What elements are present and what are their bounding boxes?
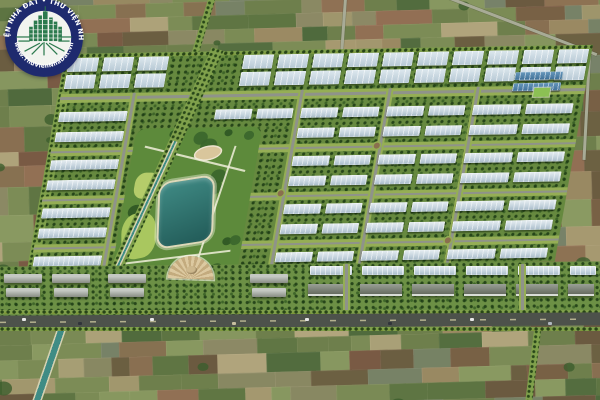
rowhouse-roof — [424, 125, 462, 136]
hall-roof — [274, 71, 306, 86]
vehicle — [22, 318, 26, 321]
rowhouse-roof — [41, 207, 111, 218]
rowhouse-roof — [283, 204, 321, 215]
street — [343, 264, 350, 314]
rowhouse-roof — [463, 152, 512, 163]
street-road — [521, 264, 524, 314]
rowhouse-roof — [507, 199, 556, 210]
hall-roof — [452, 51, 484, 66]
midrise-roof — [466, 266, 508, 275]
apartment-block — [6, 288, 40, 297]
hall-roof — [242, 54, 274, 69]
hall-roof — [417, 51, 449, 66]
rowhouse-roof — [46, 179, 116, 190]
rowhouse-roof — [296, 127, 334, 138]
hall-roof — [487, 50, 519, 65]
building-blocks — [30, 45, 593, 271]
rowhouse-roof — [419, 153, 457, 164]
district-buildings — [0, 264, 600, 344]
apartment-block — [4, 274, 42, 283]
rowhouse-roof — [402, 250, 440, 261]
rowhouse-roof — [386, 106, 424, 117]
hall-roof — [344, 70, 376, 85]
rowhouse-roof — [374, 174, 412, 185]
rowhouse-roof — [427, 105, 465, 116]
rowhouse-roof — [382, 126, 420, 137]
vehicle — [150, 318, 154, 321]
rowhouse-roof — [365, 222, 403, 233]
rowhouse-roof — [300, 107, 338, 118]
rowhouse-roof — [504, 220, 553, 231]
hall-roof — [414, 68, 446, 83]
rowhouse-roof — [468, 124, 517, 135]
midrise-roof — [412, 284, 454, 296]
rowhouse-roof — [455, 200, 504, 211]
rowhouse-roof — [407, 221, 445, 232]
factory-roof — [514, 71, 563, 80]
vehicle — [548, 322, 552, 325]
hall-roof — [312, 53, 344, 68]
rowhouse-roof — [274, 252, 312, 263]
hall-roof — [99, 74, 131, 89]
apartment-block — [250, 274, 288, 283]
rowhouse-roof — [451, 220, 500, 231]
hall-roof — [522, 50, 554, 65]
hall-roof — [309, 70, 341, 85]
road-tree-line — [0, 327, 600, 331]
apartment-block — [110, 288, 144, 297]
development-area — [30, 45, 593, 271]
hall-roof — [102, 57, 134, 72]
rowhouse-roof — [214, 109, 252, 120]
rowhouse-roof — [472, 104, 521, 115]
rowhouse-roof — [338, 127, 376, 138]
rowhouse-roof — [341, 107, 379, 118]
hall-roof — [557, 49, 589, 64]
apartment-block — [108, 274, 146, 283]
rowhouse-roof — [333, 155, 371, 166]
midrise-roof — [570, 266, 596, 275]
hall-roof — [347, 53, 379, 68]
hall-roof — [137, 56, 169, 71]
rowhouse-roof — [316, 251, 354, 262]
hall-roof — [484, 67, 516, 82]
aerial-masterplan-render: THƯ VIỆN NHÀ ĐẤT • THƯ VIỆN NHÀ ĐẤT ✦ ww… — [0, 0, 600, 400]
rowhouse-roof — [321, 223, 359, 234]
midrise-roof — [464, 284, 506, 296]
sports-field — [533, 88, 551, 97]
watermark-logo: THƯ VIỆN NHÀ ĐẤT • THƯ VIỆN NHÀ ĐẤT ✦ ww… — [2, 0, 86, 80]
rowhouse-roof — [521, 123, 570, 134]
rowhouse-roof — [54, 131, 124, 142]
rowhouse-roof — [360, 250, 398, 261]
rowhouse-roof — [329, 175, 367, 186]
hall-roof — [379, 69, 411, 84]
vehicle — [232, 322, 236, 325]
midrise-roof — [568, 284, 594, 296]
rowhouse-roof — [369, 202, 407, 213]
street — [519, 264, 526, 314]
rowhouse-roof — [58, 111, 128, 122]
apartment-block — [52, 274, 90, 283]
street-road — [345, 264, 348, 314]
plaza-dome — [186, 266, 197, 274]
rowhouse-roof — [415, 173, 453, 184]
vehicle — [78, 322, 82, 325]
rowhouse-roof — [291, 155, 329, 166]
hall-roof — [382, 52, 414, 67]
southern-district — [0, 264, 600, 344]
rowhouse-roof — [324, 203, 362, 214]
road-traffic — [0, 314, 600, 327]
rowhouse-roof — [516, 151, 565, 162]
vehicle — [388, 322, 392, 325]
rowhouse-roof — [279, 224, 317, 235]
apartment-block — [54, 288, 88, 297]
midrise-roof — [414, 266, 456, 275]
vehicle — [470, 318, 474, 321]
rowhouse-roof — [255, 108, 293, 119]
midrise-roof — [360, 284, 402, 296]
hall-roof — [239, 71, 271, 86]
rowhouse-roof — [49, 159, 119, 170]
hall-roof — [277, 54, 309, 69]
rowhouse-roof — [512, 171, 561, 182]
rowhouse-roof — [410, 201, 448, 212]
midrise-roof — [362, 266, 404, 275]
rowhouse-roof — [377, 154, 415, 165]
vehicle — [305, 318, 309, 321]
rowhouse-roof — [446, 249, 495, 260]
hall-roof — [449, 68, 481, 83]
apartment-block — [252, 288, 286, 297]
rowhouse-roof — [524, 103, 573, 114]
rowhouse-roof — [460, 172, 509, 183]
rowhouse-roof — [288, 176, 326, 187]
hall-roof — [134, 73, 166, 88]
rowhouse-roof — [499, 248, 548, 259]
rowhouse-roof — [37, 227, 107, 238]
